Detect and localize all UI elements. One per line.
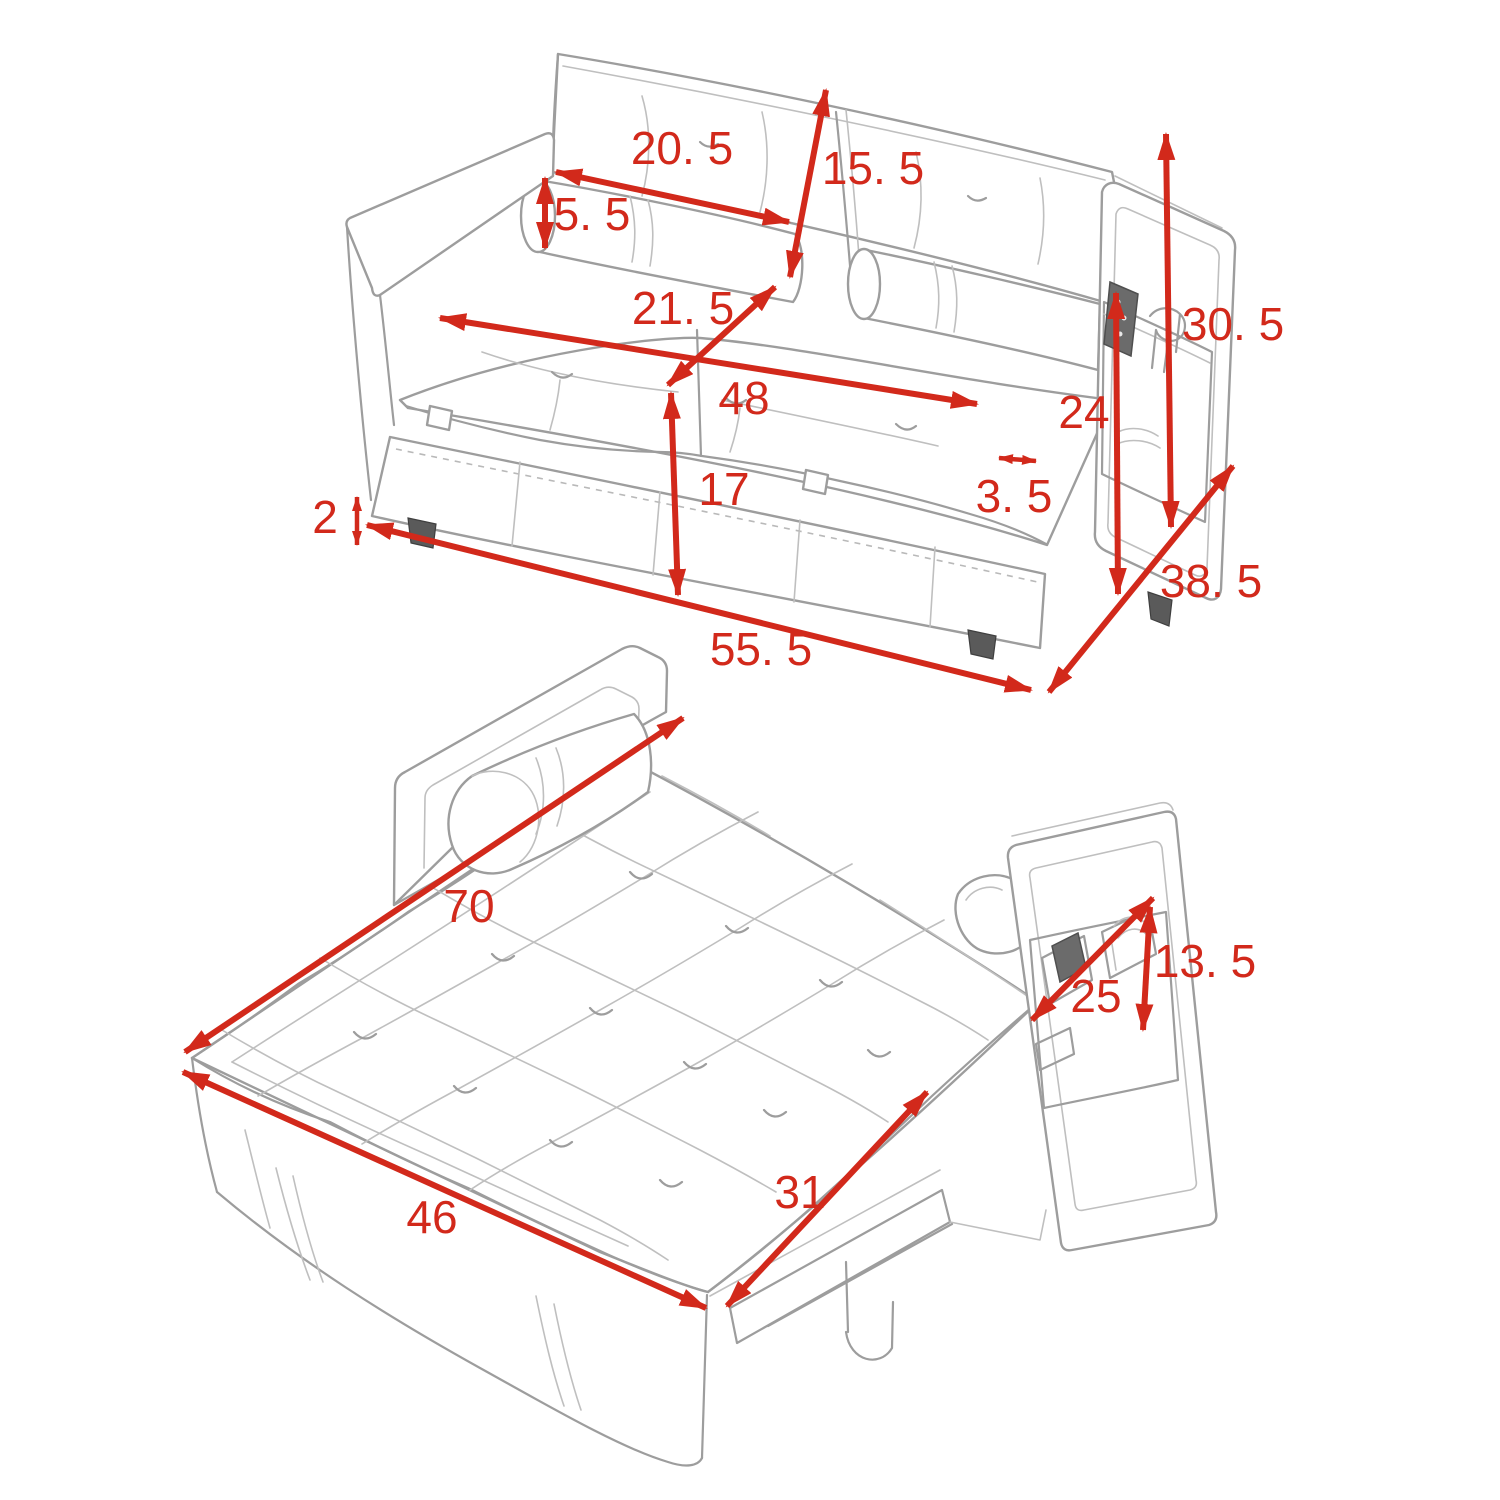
dimension-label-seat-depth: 21. 5 [632,282,734,334]
dimension-arrow-armrest-thickness [999,458,1036,461]
dimension-label-arm-pocket-width: 25 [1070,970,1121,1022]
sofa-bolster-right-cap [848,249,880,319]
dimension-label-back-cushion-width: 20. 5 [631,122,733,174]
sofa-pull-tab-1 [427,406,452,430]
remote-button-2 [1122,316,1127,321]
dimension-arrow-side-pocket-height [1116,293,1118,594]
sofa-left-arm-inner [380,295,394,425]
dimension-label-overall-depth: 38. 5 [1160,555,1262,607]
dimension-label-armrest-thickness: 3. 5 [976,470,1053,522]
dimension-bolster-diameter: 5. 5 [545,178,630,248]
bed-skirt-right-edge [702,1295,707,1458]
dimension-label-base-height: 17 [698,463,749,515]
bed-frame-support [950,1210,1046,1240]
dimension-label-bolster-diameter: 5. 5 [554,188,631,240]
bed-right-arm-board [1008,812,1216,1251]
sofa-pull-tab-2 [803,470,828,494]
bed-skirt-fold [245,1130,270,1228]
dimension-leg-height: 2 [312,491,357,545]
dimension-label-bed-length: 70 [443,880,494,932]
dimension-label-back-total-height: 30. 5 [1182,298,1284,350]
sofa-pocket-remote [1104,282,1138,356]
dimension-label-bed-width: 46 [406,1191,457,1243]
bed-mattress [192,762,1038,1292]
dimension-label-overall-width: 55. 5 [710,623,812,675]
dimension-label-arm-pocket-height: 13. 5 [1154,935,1256,987]
bed-skirt-pleat-2 [536,1296,581,1410]
dimension-label-pullout-depth: 31 [774,1166,825,1218]
diagram-canvas: 20. 515. 55. 521. 548173. 52430. 5238. 5… [0,0,1500,1500]
dimension-label-leg-height: 2 [312,491,338,543]
dimension-label-seat-width: 48 [718,372,769,424]
sofa-bed-dimension-diagram: 20. 515. 55. 521. 548173. 52430. 5238. 5… [0,0,1500,1500]
sofa-sketch [346,54,1235,659]
dimension-label-side-pocket-height: 24 [1058,386,1109,438]
bed-skirt-pleat-1 [276,1168,323,1282]
dimension-label-back-cushion-height: 15. 5 [822,142,924,194]
bed-sketch [192,646,1216,1465]
